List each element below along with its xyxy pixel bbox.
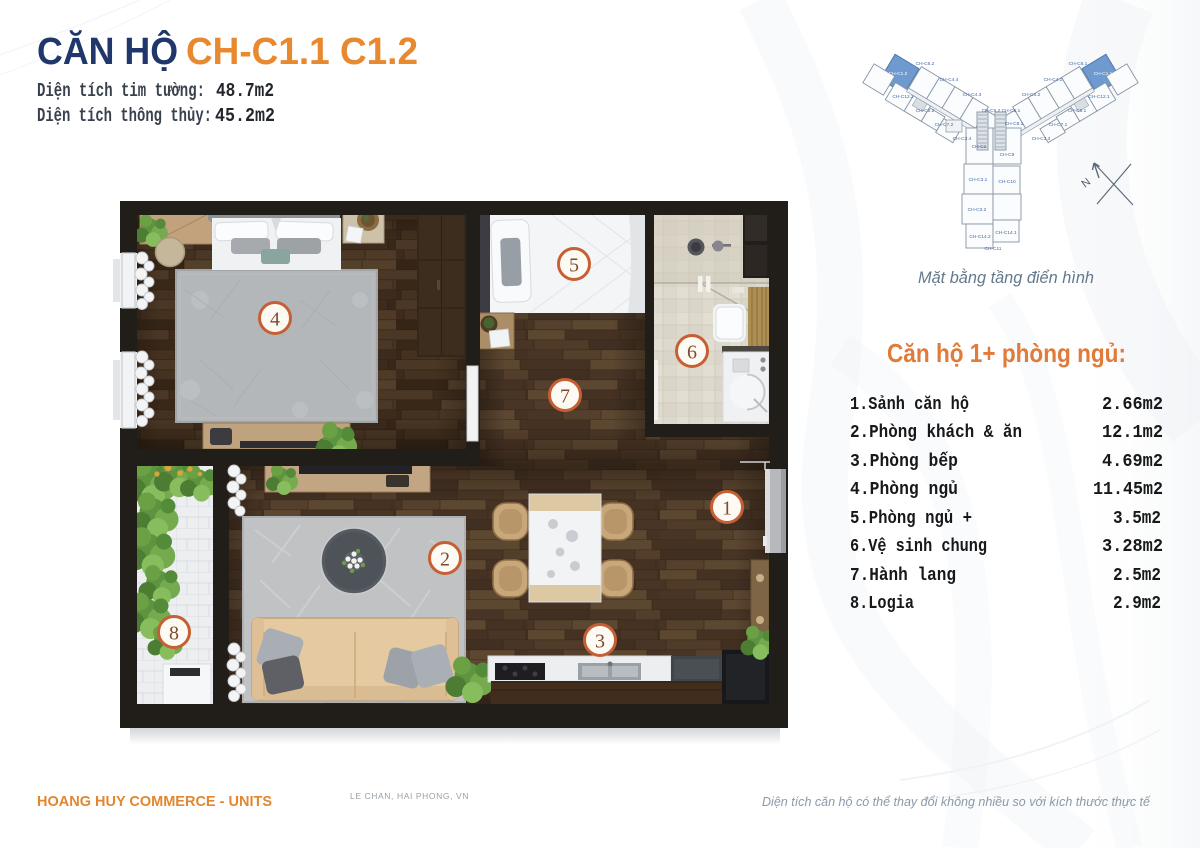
svg-text:CH-C2: CH-C2 [972, 144, 987, 150]
svg-text:CH-C11: CH-C11 [985, 246, 1002, 252]
svg-text:3.Phòng bếp: 3.Phòng bếp [850, 451, 958, 472]
svg-text:8.Logia: 8.Logia [850, 594, 914, 614]
svg-text:CH-C1.1: CH-C1.1 [1094, 71, 1113, 77]
svg-text:CH-C3.2: CH-C3.2 [968, 207, 987, 213]
svg-text:CH-C4.2: CH-C4.2 [1022, 92, 1041, 98]
svg-text:7.Hành lang: 7.Hành lang [850, 566, 956, 586]
svg-text:CĂN HỘ: CĂN HỘ [37, 28, 178, 73]
svg-text:4.69m2: 4.69m2 [1102, 452, 1163, 472]
svg-text:CH-C7.1: CH-C7.1 [1049, 122, 1068, 128]
svg-text:CH-C8.2: CH-C8.2 [916, 108, 935, 114]
svg-text:CH-C1.1 C1.2: CH-C1.1 C1.2 [186, 31, 418, 73]
svg-text:2: 2 [440, 549, 450, 571]
svg-text:3.28m2: 3.28m2 [1102, 537, 1163, 557]
svg-text:HOANG HUY COMMERCE - UNITS: HOANG HUY COMMERCE - UNITS [37, 793, 272, 810]
svg-text:4.Phòng ngủ: 4.Phòng ngủ [850, 480, 958, 500]
svg-text:CH-C6.1: CH-C6.1 [1069, 61, 1088, 67]
svg-text:7: 7 [560, 386, 570, 408]
svg-text:CH-C5.2: CH-C5.2 [982, 108, 1001, 114]
svg-text:1.Sảnh căn hộ: 1.Sảnh căn hộ [850, 395, 969, 415]
svg-text:CH-C12.1: CH-C12.1 [1088, 94, 1110, 100]
svg-text:CH-C14.2: CH-C14.2 [969, 234, 991, 240]
svg-text:2.66m2: 2.66m2 [1102, 395, 1163, 415]
svg-text:CH-C3.3: CH-C3.3 [1032, 136, 1051, 142]
svg-text:2.9m2: 2.9m2 [1113, 594, 1161, 614]
svg-text:CH-C5.1: CH-C5.1 [1002, 108, 1021, 114]
svg-text:CH-C10: CH-C10 [998, 179, 1016, 185]
svg-text:3: 3 [595, 631, 605, 653]
svg-text:CH-C12.2: CH-C12.2 [892, 94, 914, 100]
svg-text:CH-C8.1: CH-C8.1 [1068, 108, 1087, 114]
svg-text:Căn hộ 1+ phòng ngủ:: Căn hộ 1+ phòng ngủ: [887, 338, 1126, 368]
svg-text:Diện tích tim tường:: Diện tích tim tường: [37, 80, 205, 102]
svg-text:48.7m2: 48.7m2 [216, 80, 274, 102]
svg-text:45.2m2: 45.2m2 [215, 105, 275, 127]
svg-text:3.5m2: 3.5m2 [1113, 509, 1161, 529]
svg-text:CH-C1.2: CH-C1.2 [889, 71, 908, 77]
svg-text:CH-C9: CH-C9 [1000, 152, 1015, 158]
svg-text:Diện tích căn hộ có thể thay đ: Diện tích căn hộ có thể thay đổi không n… [762, 794, 1151, 809]
svg-text:CH-C14.1: CH-C14.1 [995, 230, 1017, 236]
svg-text:4: 4 [270, 309, 280, 331]
svg-text:6.Vệ sinh chung: 6.Vệ sinh chung [850, 537, 987, 557]
svg-text:1: 1 [722, 498, 732, 520]
svg-text:CH-C6.2: CH-C6.2 [916, 61, 935, 67]
svg-text:CH-C4.1: CH-C4.1 [1044, 77, 1063, 83]
svg-text:LE CHAN, HAI PHONG, VN: LE CHAN, HAI PHONG, VN [350, 791, 469, 801]
svg-text:2.Phòng khách & ăn: 2.Phòng khách & ăn [850, 423, 1022, 443]
svg-text:Diện tích thông thủy:: Diện tích thông thủy: [37, 105, 212, 127]
svg-text:Mặt bằng tầng điển hình: Mặt bằng tầng điển hình [918, 268, 1094, 287]
svg-text:CH-C3.4: CH-C3.4 [953, 136, 972, 142]
svg-text:12.1m2: 12.1m2 [1102, 423, 1163, 443]
svg-text:CH-C4.4: CH-C4.4 [940, 77, 959, 83]
svg-text:CH-C8.1: CH-C8.1 [1005, 121, 1024, 127]
svg-text:CH-C4.3: CH-C4.3 [963, 92, 982, 98]
svg-text:CH-C3.1: CH-C3.1 [969, 177, 988, 183]
svg-text:8: 8 [169, 623, 179, 645]
svg-text:5: 5 [569, 255, 579, 277]
svg-text:2.5m2: 2.5m2 [1113, 566, 1161, 586]
svg-text:CH-C7.2: CH-C7.2 [935, 122, 954, 128]
svg-text:5.Phòng ngủ +: 5.Phòng ngủ + [850, 509, 972, 529]
svg-text:11.45m2: 11.45m2 [1093, 480, 1163, 500]
svg-text:6: 6 [687, 342, 697, 364]
